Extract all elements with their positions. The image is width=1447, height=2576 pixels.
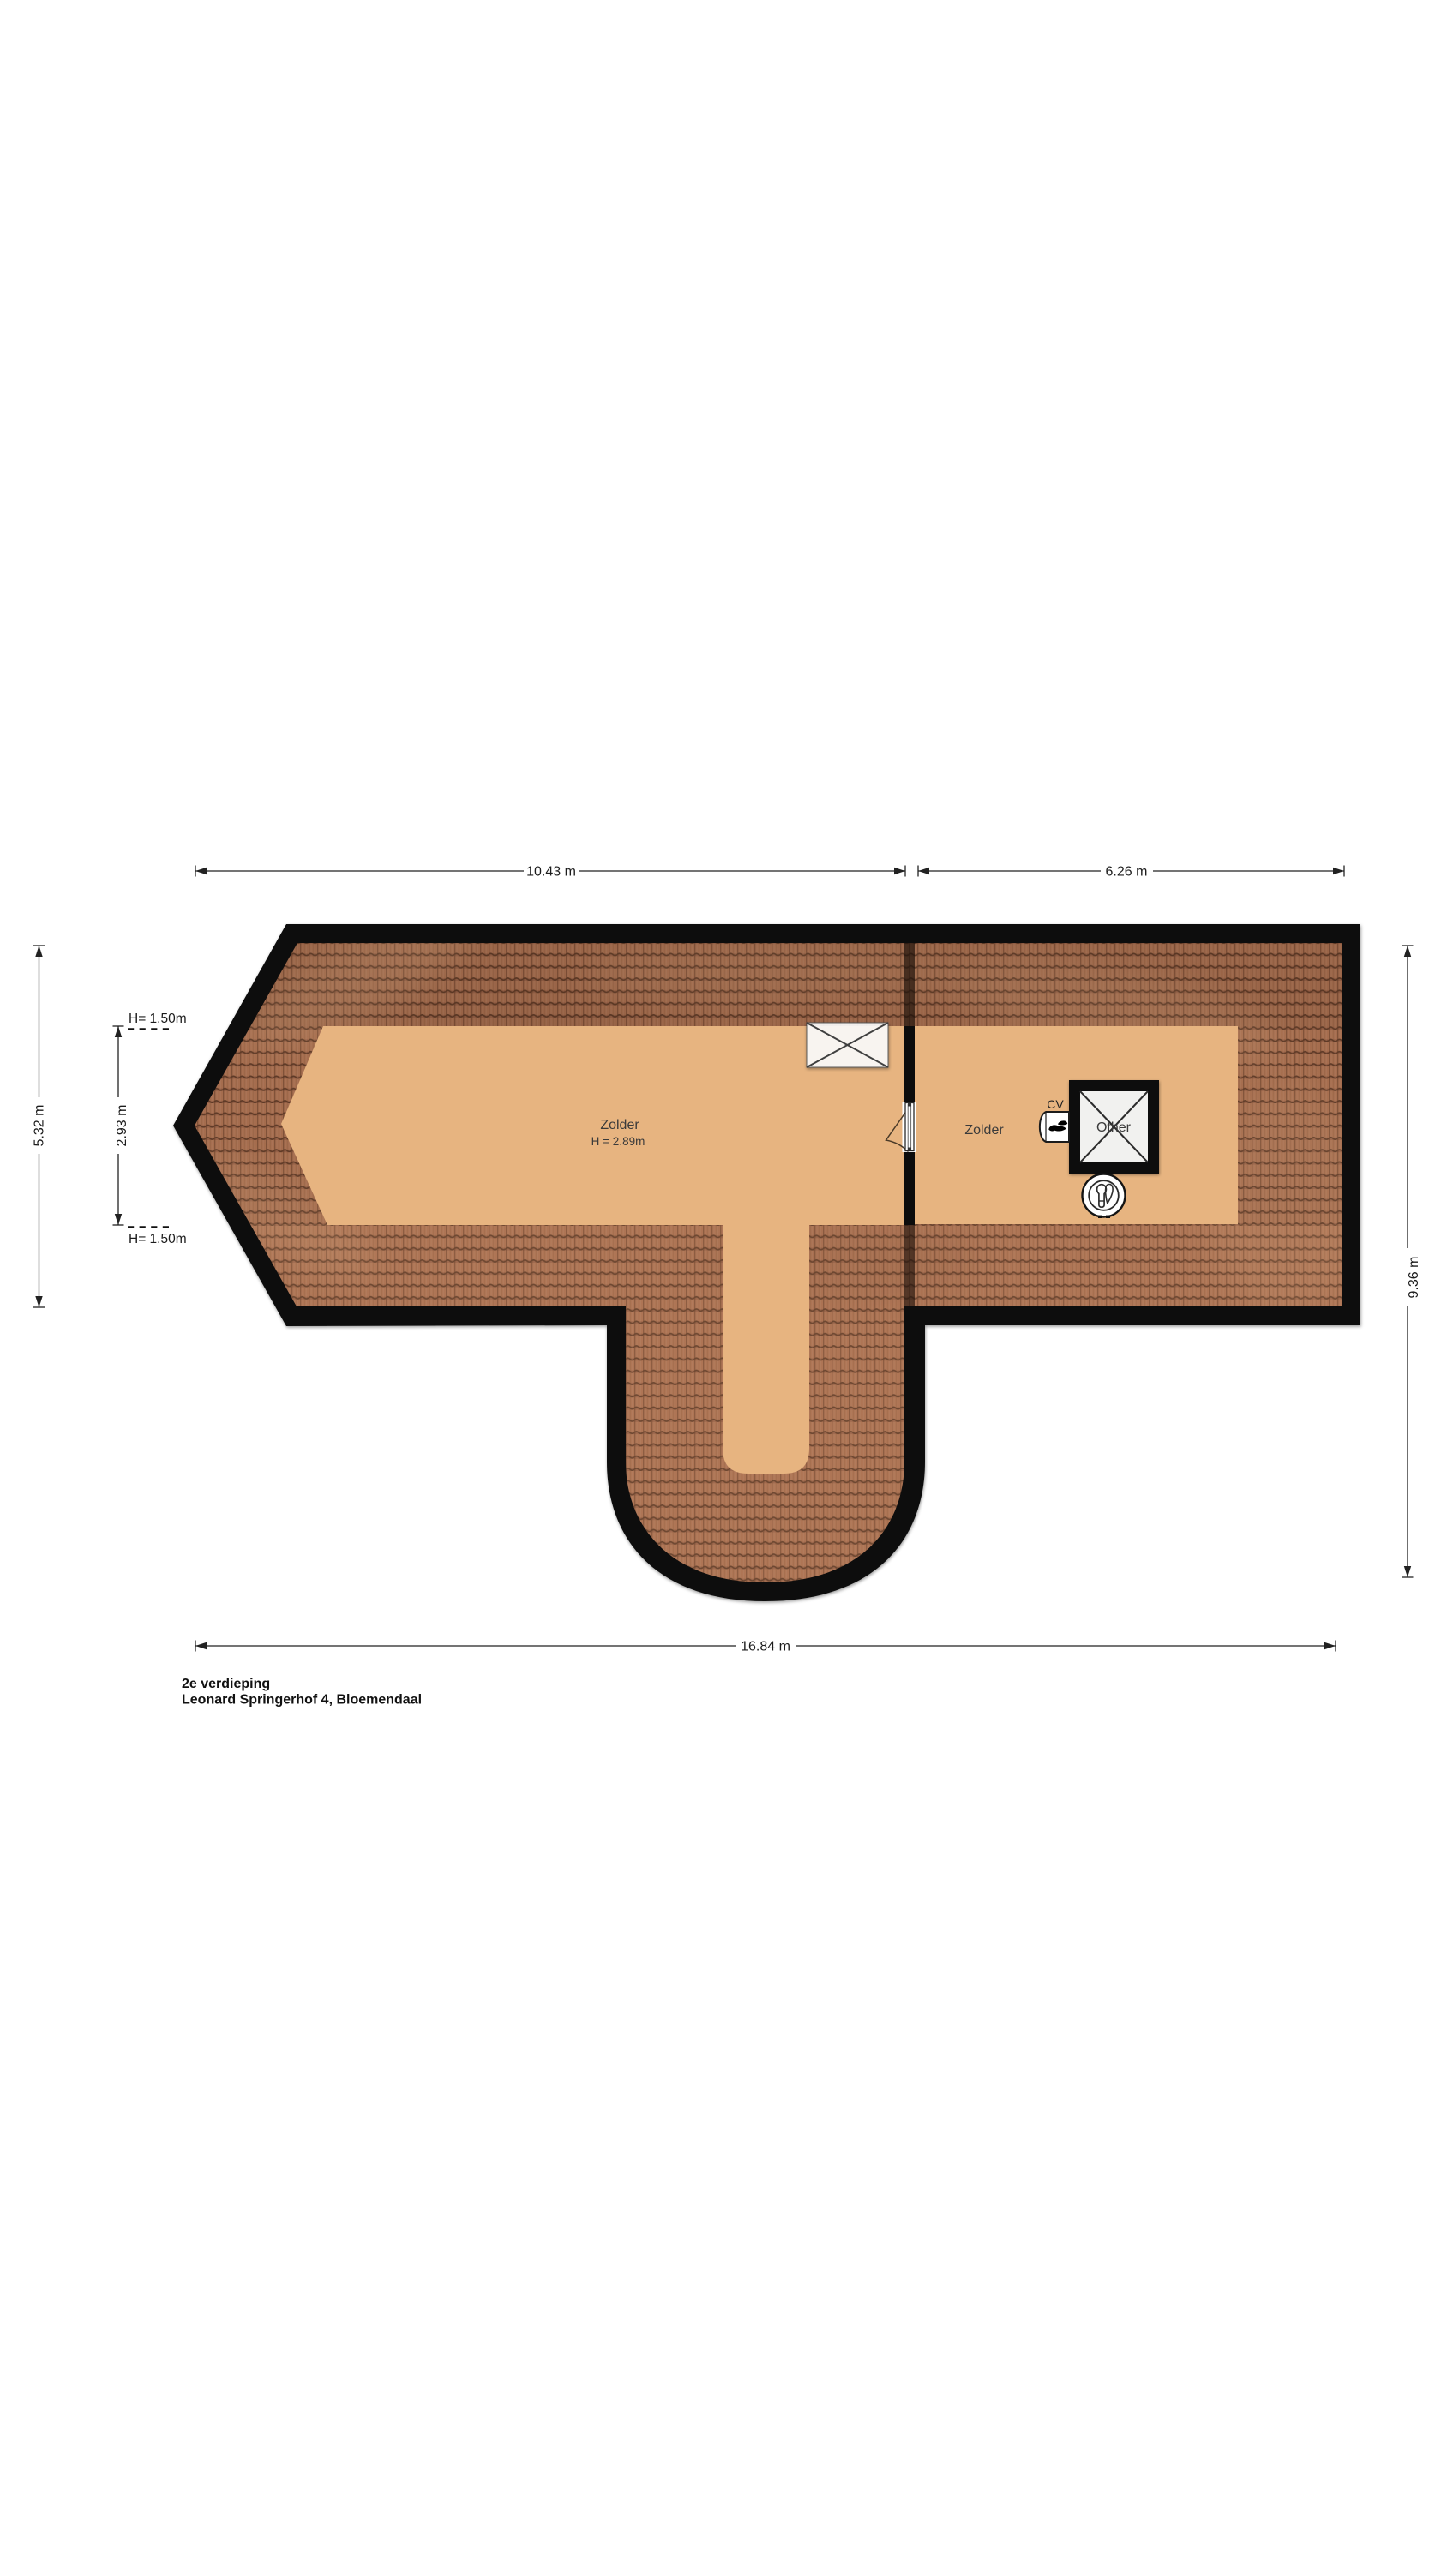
svg-text:Leonard Springerhof 4, Bloemen: Leonard Springerhof 4, Bloemendaal bbox=[182, 1693, 422, 1708]
svg-text:9.36 m: 9.36 m bbox=[1407, 1257, 1421, 1299]
svg-text:Zolder: Zolder bbox=[600, 1118, 639, 1132]
svg-text:10.43 m: 10.43 m bbox=[526, 865, 576, 880]
svg-text:Zolder: Zolder bbox=[964, 1123, 1004, 1138]
svg-text:CV: CV bbox=[1047, 1097, 1064, 1111]
svg-text:H= 1.50m: H= 1.50m bbox=[129, 1012, 187, 1026]
svg-text:2.93 m: 2.93 m bbox=[115, 1105, 129, 1147]
svg-text:H= 1.50m: H= 1.50m bbox=[129, 1232, 187, 1246]
svg-text:H = 2.89m: H = 2.89m bbox=[591, 1135, 645, 1148]
svg-text:6.26 m: 6.26 m bbox=[1106, 865, 1148, 880]
svg-text:16.84 m: 16.84 m bbox=[741, 1640, 790, 1654]
svg-text:2e verdieping: 2e verdieping bbox=[182, 1677, 270, 1691]
svg-text:Other: Other bbox=[1096, 1120, 1132, 1135]
svg-text:5.32 m: 5.32 m bbox=[33, 1105, 47, 1147]
